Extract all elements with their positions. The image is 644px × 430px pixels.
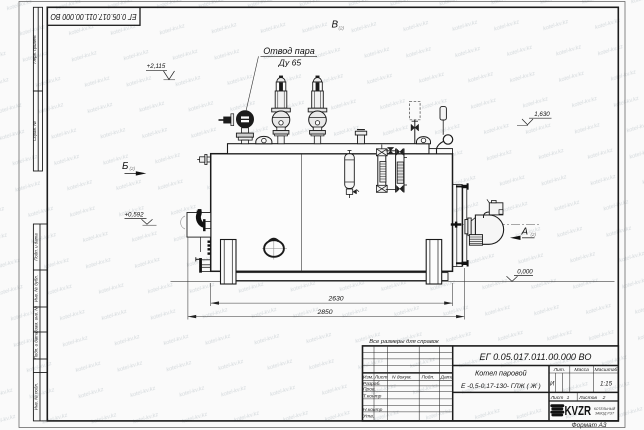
svg-text:Т.контр: Т.контр xyxy=(363,394,382,400)
svg-text:Перв. примен.: Перв. примен. xyxy=(32,34,37,63)
svg-text:Котел паровой: Котел паровой xyxy=(475,369,527,378)
svg-text:Инв. № дубл.: Инв. № дубл. xyxy=(34,275,39,302)
svg-text:1:15: 1:15 xyxy=(600,380,613,387)
svg-text:N докум.: N докум. xyxy=(392,375,412,381)
svg-text:ЗАВОД РЭТ: ЗАВОД РЭТ xyxy=(595,412,615,416)
svg-text:Подп. и дата: Подп. и дата xyxy=(34,331,39,359)
svg-text:(2): (2) xyxy=(531,232,537,237)
svg-text:Б: Б xyxy=(122,161,129,172)
svg-text:Пров.: Пров. xyxy=(363,387,376,393)
svg-text:(2): (2) xyxy=(130,166,136,171)
svg-text:2: 2 xyxy=(602,395,606,401)
svg-text:Листов: Листов xyxy=(578,395,597,401)
svg-text:Е -0,5-0,17-130- ГЛЖ ( Ж ): Е -0,5-0,17-130- ГЛЖ ( Ж ) xyxy=(461,383,541,390)
svg-text:Инв. № подл.: Инв. № подл. xyxy=(34,383,39,410)
svg-text:Подп. и дата: Подп. и дата xyxy=(34,233,39,261)
svg-text:1,630: 1,630 xyxy=(534,111,550,118)
svg-text:+2,115: +2,115 xyxy=(147,63,166,70)
svg-text:Н.контр: Н.контр xyxy=(363,407,383,413)
svg-text:Все размеры для справок: Все размеры для справок xyxy=(369,339,439,345)
svg-text:Лист: Лист xyxy=(374,375,388,381)
svg-text:Ду 65: Ду 65 xyxy=(278,57,302,67)
svg-text:ЕГ 0.05.017.011.00.000 ВО: ЕГ 0.05.017.011.00.000 ВО xyxy=(480,352,593,363)
svg-text:Утв.: Утв. xyxy=(363,414,374,420)
svg-text:Масса: Масса xyxy=(574,367,589,373)
svg-text:(2): (2) xyxy=(339,26,345,31)
svg-text:2630: 2630 xyxy=(327,296,343,303)
svg-text:Взам. инв. №: Взам. инв. № xyxy=(34,306,39,333)
svg-text:Лит.: Лит. xyxy=(553,367,565,373)
svg-text:Изм.: Изм. xyxy=(363,375,373,381)
svg-text:Лист: Лист xyxy=(550,395,564,401)
svg-text:КОТЕЛЬНЫЙ: КОТЕЛЬНЫЙ xyxy=(594,407,616,411)
svg-text:А: А xyxy=(521,227,529,238)
svg-text:Справ. №: Справ. № xyxy=(32,121,37,141)
svg-text:KVZR: KVZR xyxy=(565,403,592,418)
svg-text:1: 1 xyxy=(567,395,570,401)
svg-text:ЕГ 0.05.017.011.00.000 ВО: ЕГ 0.05.017.011.00.000 ВО xyxy=(51,12,137,21)
svg-text:Разраб.: Разраб. xyxy=(363,381,381,387)
svg-text:Масштаб: Масштаб xyxy=(594,367,617,373)
svg-text:В: В xyxy=(332,20,339,31)
svg-text:Отвод пара: Отвод пара xyxy=(263,46,314,56)
svg-text:+0,592: +0,592 xyxy=(124,211,144,218)
svg-text:Дата: Дата xyxy=(440,375,454,381)
svg-text:И: И xyxy=(550,381,555,387)
svg-text:2850: 2850 xyxy=(316,309,332,316)
svg-text:0,000: 0,000 xyxy=(517,269,533,276)
svg-text:Формат А3: Формат А3 xyxy=(572,422,607,429)
svg-text:Подп.: Подп. xyxy=(422,375,435,381)
